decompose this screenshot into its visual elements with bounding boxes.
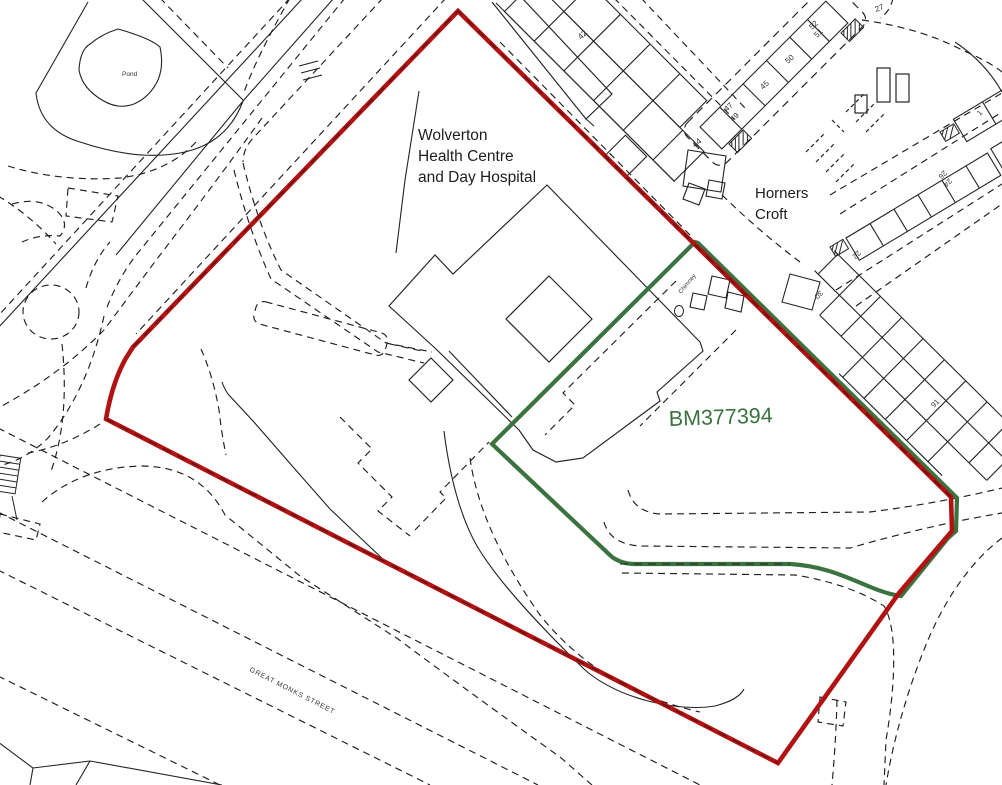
svg-text:BM377394: BM377394 bbox=[668, 403, 773, 431]
svg-text:Croft: Croft bbox=[755, 206, 788, 223]
svg-text:and Day Hospital: and Day Hospital bbox=[418, 169, 536, 186]
svg-text:Pond: Pond bbox=[122, 71, 138, 78]
svg-text:Wolverton: Wolverton bbox=[418, 127, 488, 144]
svg-text:Health Centre: Health Centre bbox=[418, 148, 514, 165]
svg-text:Horners: Horners bbox=[755, 185, 808, 202]
